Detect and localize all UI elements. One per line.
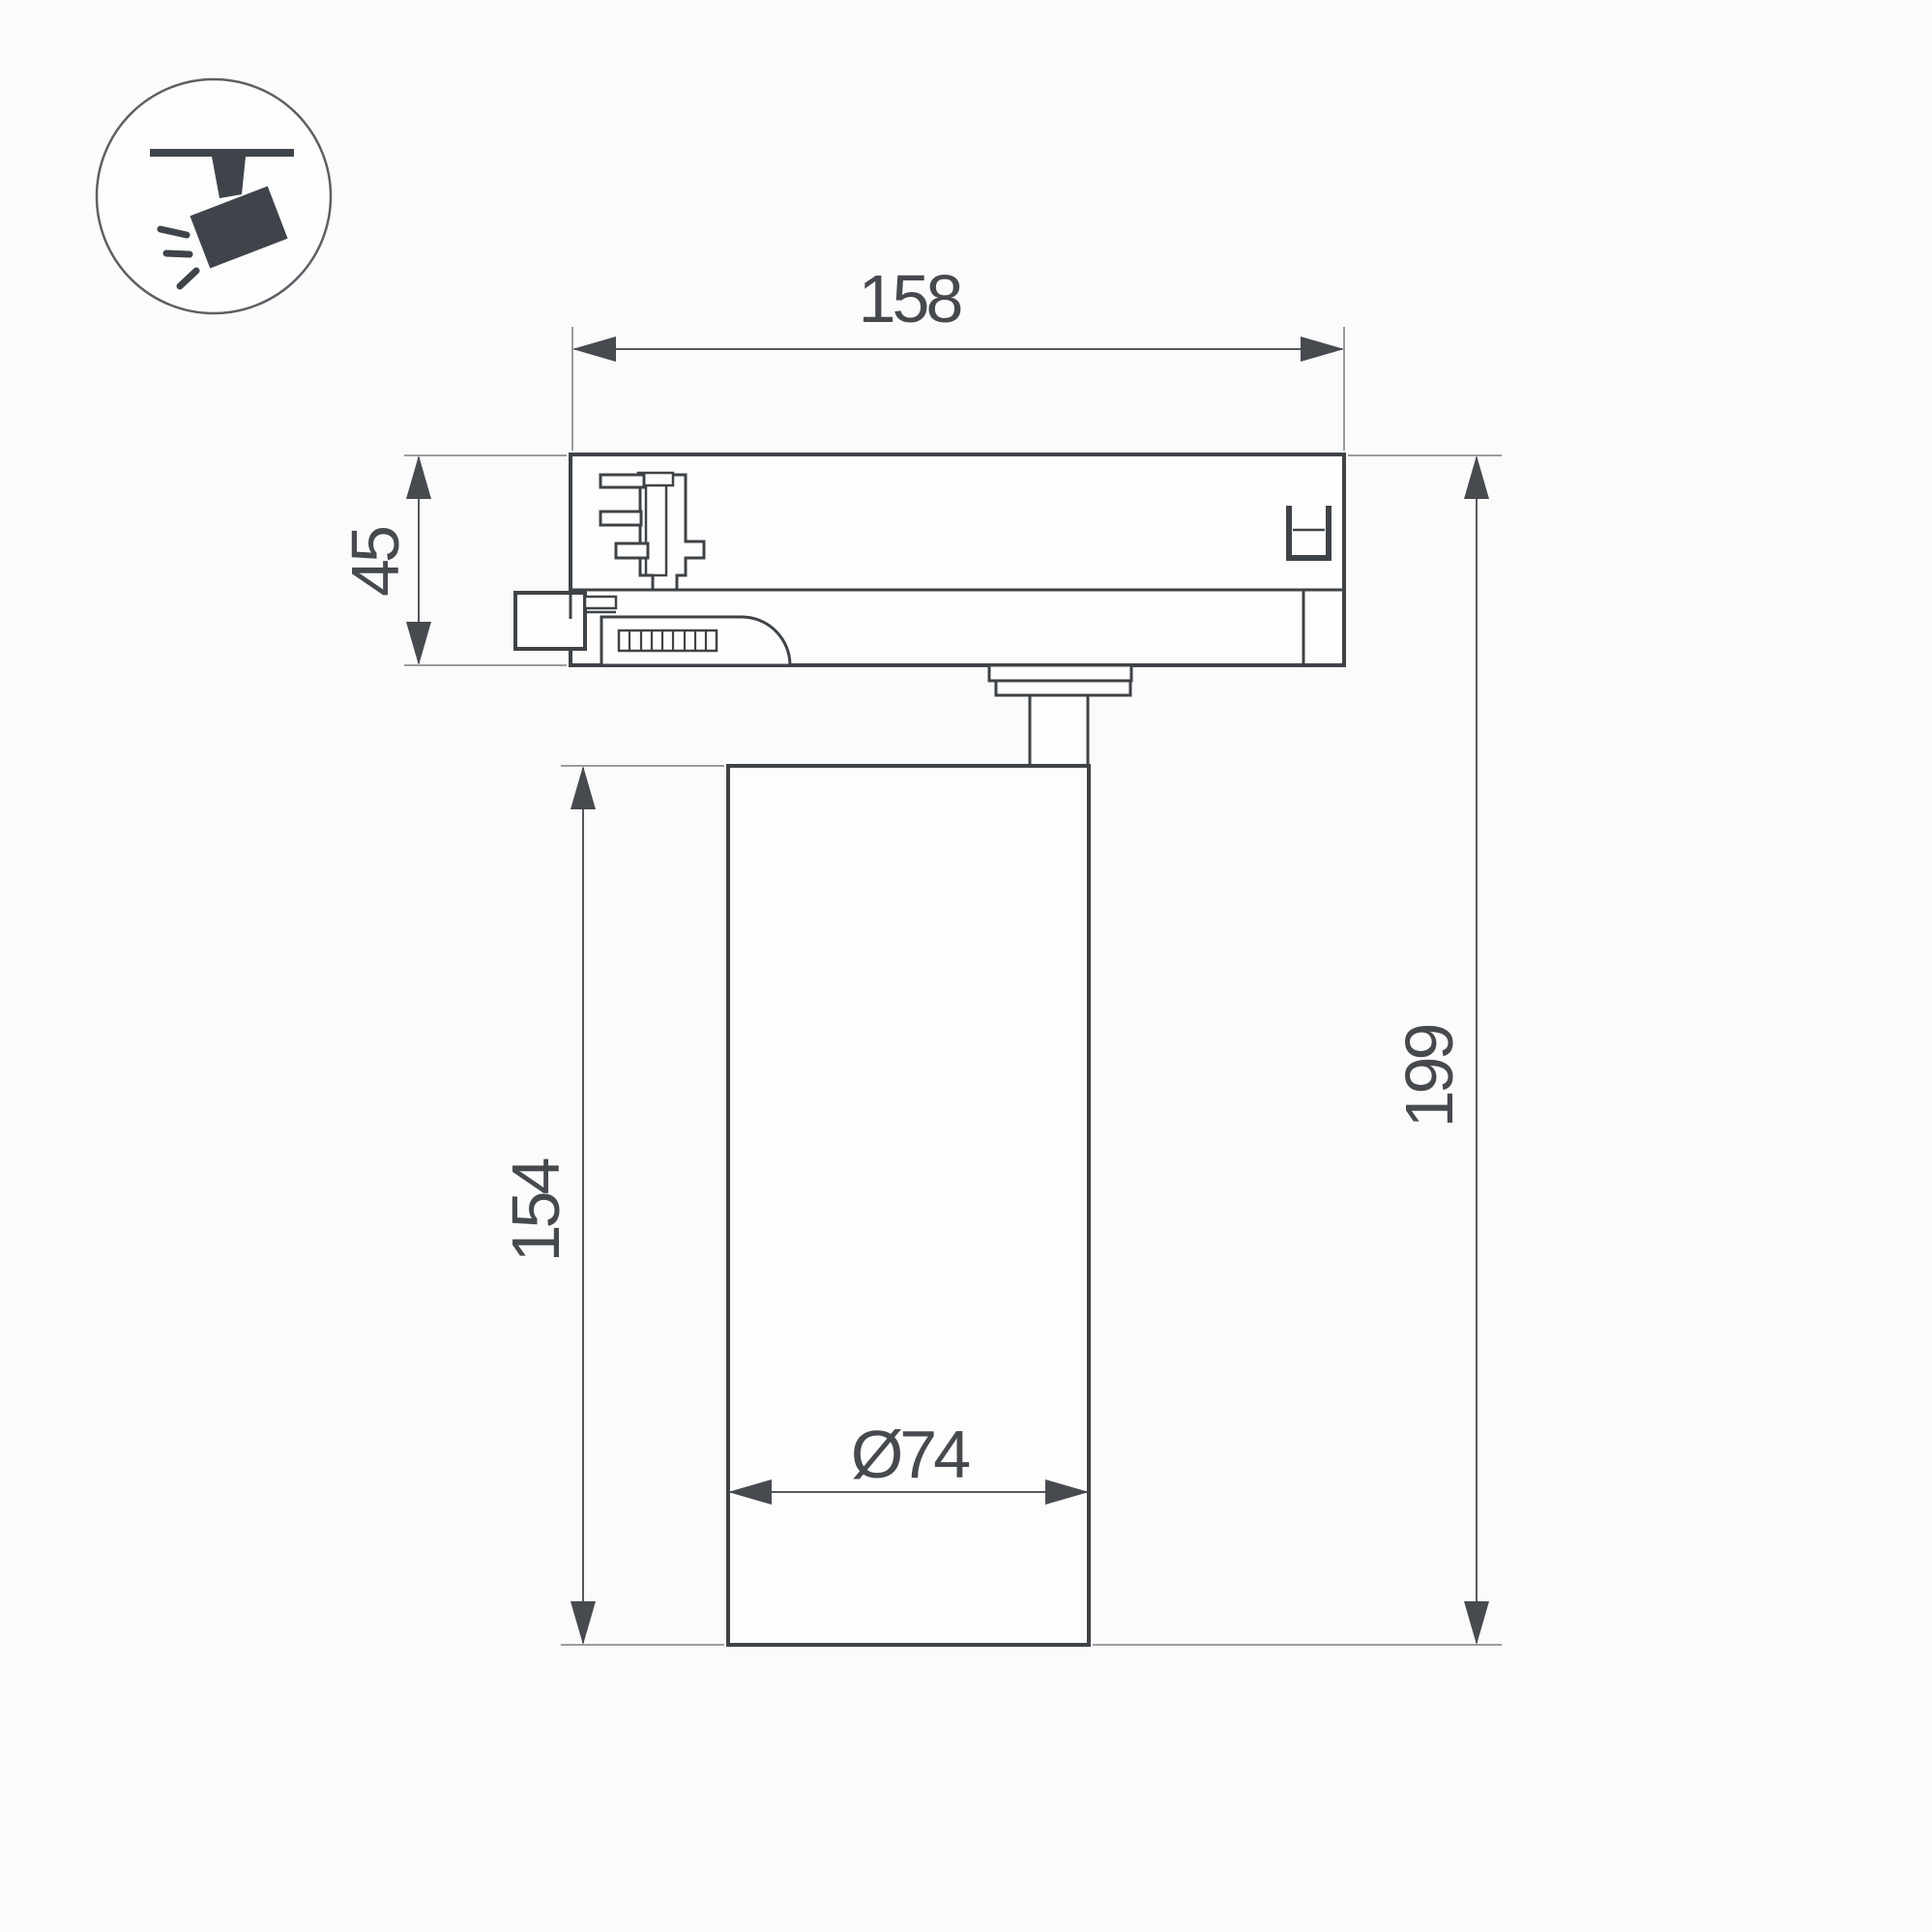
contact-prong xyxy=(616,543,648,558)
dim-label-diameter: Ø74 xyxy=(851,1417,969,1492)
icon-circle xyxy=(97,79,331,313)
dim-label-width: 158 xyxy=(859,261,961,337)
swivel-step-lower xyxy=(996,681,1130,695)
arrow-down-icon xyxy=(1464,1601,1489,1645)
dimension-drawing-svg: 158 45 154 199 Ø74 xyxy=(0,0,1932,1932)
arrow-down-icon xyxy=(571,1601,596,1645)
arrow-left-icon xyxy=(572,337,616,362)
arrow-up-icon xyxy=(1464,455,1489,499)
swivel-step-upper xyxy=(989,665,1131,681)
contact-prong xyxy=(600,512,641,525)
dim-label-total-height: 199 xyxy=(1391,1026,1467,1128)
icon-track-rail xyxy=(150,149,294,157)
latch-block xyxy=(515,593,585,649)
lamp-cylinder-body xyxy=(728,766,1089,1645)
latch-detail xyxy=(585,597,616,608)
arrow-right-icon xyxy=(1301,337,1344,362)
dim-label-adapter-height: 45 xyxy=(337,528,413,597)
swivel-stem xyxy=(1030,695,1088,766)
dim-label-body-height: 154 xyxy=(498,1159,573,1263)
arrow-down-icon xyxy=(406,622,431,665)
light-ray-icon xyxy=(166,253,190,254)
track-spotlight-icon xyxy=(97,79,331,313)
contact-prong xyxy=(600,475,644,487)
arrow-up-icon xyxy=(406,455,431,499)
technical-drawing-canvas: 158 45 154 199 Ø74 xyxy=(0,0,1932,1932)
arrow-up-icon xyxy=(571,766,596,809)
